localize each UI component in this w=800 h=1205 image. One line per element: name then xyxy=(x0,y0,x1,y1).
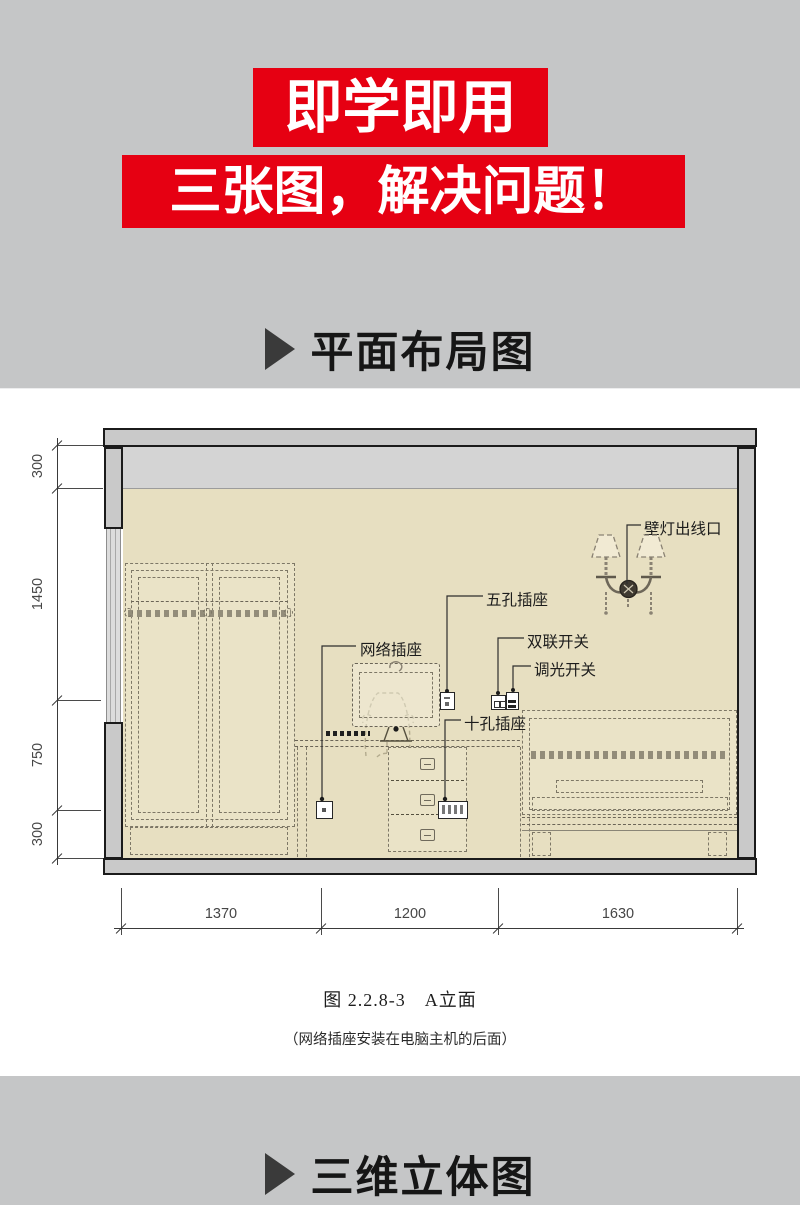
left-window-mullion-2 xyxy=(115,529,116,722)
left-wall-upper xyxy=(104,447,123,529)
dim-ext-left-4 xyxy=(57,810,101,811)
dim-value-1370: 1370 xyxy=(181,906,261,922)
dim-value-1630: 1630 xyxy=(578,906,658,922)
bed-mattress xyxy=(532,797,728,811)
keyboard xyxy=(326,731,370,736)
dimmer-switch-symbol xyxy=(506,692,519,710)
triangle-bullet-icon xyxy=(265,328,295,370)
section-header-3d: 三维立体图 xyxy=(0,1143,800,1205)
bed-base-line-3 xyxy=(522,830,737,831)
bed-base-line-1 xyxy=(522,817,737,818)
dim-value-300-top: 300 xyxy=(30,434,46,498)
drawer-divider-1 xyxy=(391,780,464,781)
dim-ext-left-2 xyxy=(57,488,103,489)
bed-tuft-band xyxy=(531,751,728,759)
left-window-mullion-1 xyxy=(110,529,111,722)
drawer-handle-3 xyxy=(420,829,435,841)
bed-pillow xyxy=(556,780,703,793)
dimmer-switch-bar-1 xyxy=(508,700,516,703)
floor-slab xyxy=(103,858,757,875)
right-wall xyxy=(737,447,756,859)
dim-value-1200: 1200 xyxy=(370,906,450,922)
section-title-3d: 三维立体图 xyxy=(311,1143,536,1205)
banner-line1: 即学即用 xyxy=(253,68,548,147)
desk-left-panel xyxy=(297,747,307,857)
dim-value-750: 750 xyxy=(30,723,46,787)
dim-value-1450: 1450 xyxy=(30,562,46,626)
wardrobe-mullion xyxy=(206,563,213,827)
monitor-screen xyxy=(359,672,433,718)
wardrobe-knob-right xyxy=(284,608,293,617)
label-wall-lamp-outlet: 壁灯出线口 xyxy=(644,517,722,539)
wardrobe-shelf-line xyxy=(131,601,288,602)
desk-top xyxy=(295,740,530,747)
left-wall-lower xyxy=(104,722,123,859)
dim-ext-left-3 xyxy=(57,700,101,701)
dim-value-300-bottom: 300 xyxy=(30,802,46,866)
bed-base-line-2 xyxy=(522,824,737,825)
banner-line2: 三张图，解决问题！ xyxy=(122,155,685,228)
dim-ext-left-1 xyxy=(57,445,103,446)
figure-note: （网络插座安装在电脑主机的后面） xyxy=(0,1028,800,1049)
figure-caption: 图 2.2.8-3 A立面 xyxy=(0,986,800,1012)
wardrobe-knob-left xyxy=(124,608,133,617)
label-dimmer-switch: 调光开关 xyxy=(534,658,596,680)
ten-hole-socket-pins xyxy=(442,805,463,814)
five-hole-socket-pin2 xyxy=(445,702,449,706)
section-header-plan: 平面布局图 xyxy=(0,318,800,380)
label-ten-hole-socket: 十孔插座 xyxy=(464,712,526,734)
wardrobe-plinth xyxy=(130,827,288,855)
dimmer-switch-bar-2 xyxy=(508,705,516,708)
wardrobe-knob-center xyxy=(203,608,212,617)
poster-page: { "banners": { "line1": "即学即用", "line2":… xyxy=(0,0,800,1202)
ten-hole-socket-symbol xyxy=(438,801,468,819)
drawer-handle-1 xyxy=(420,758,435,770)
double-switch-symbol xyxy=(491,695,506,710)
dim-line-left xyxy=(57,438,58,865)
ceiling-slab xyxy=(103,428,757,447)
network-socket-pin xyxy=(322,808,326,812)
dim-ext-left-5 xyxy=(57,858,103,859)
five-hole-socket-symbol xyxy=(440,692,455,710)
five-hole-socket-pins xyxy=(444,697,450,699)
bed-leg-right xyxy=(708,832,727,856)
dim-line-bottom xyxy=(114,928,744,929)
section-title-plan: 平面布局图 xyxy=(311,318,536,380)
drawer-handle-2 xyxy=(420,794,435,806)
label-five-hole-socket: 五孔插座 xyxy=(486,588,548,610)
network-socket-symbol xyxy=(316,801,333,819)
label-network-socket: 网络插座 xyxy=(360,638,422,660)
bed-leg-left xyxy=(532,832,551,856)
triangle-bullet-icon xyxy=(265,1153,295,1195)
ceiling-band xyxy=(123,447,737,489)
label-double-switch: 双联开关 xyxy=(527,630,589,652)
left-window-jamb xyxy=(106,529,121,722)
